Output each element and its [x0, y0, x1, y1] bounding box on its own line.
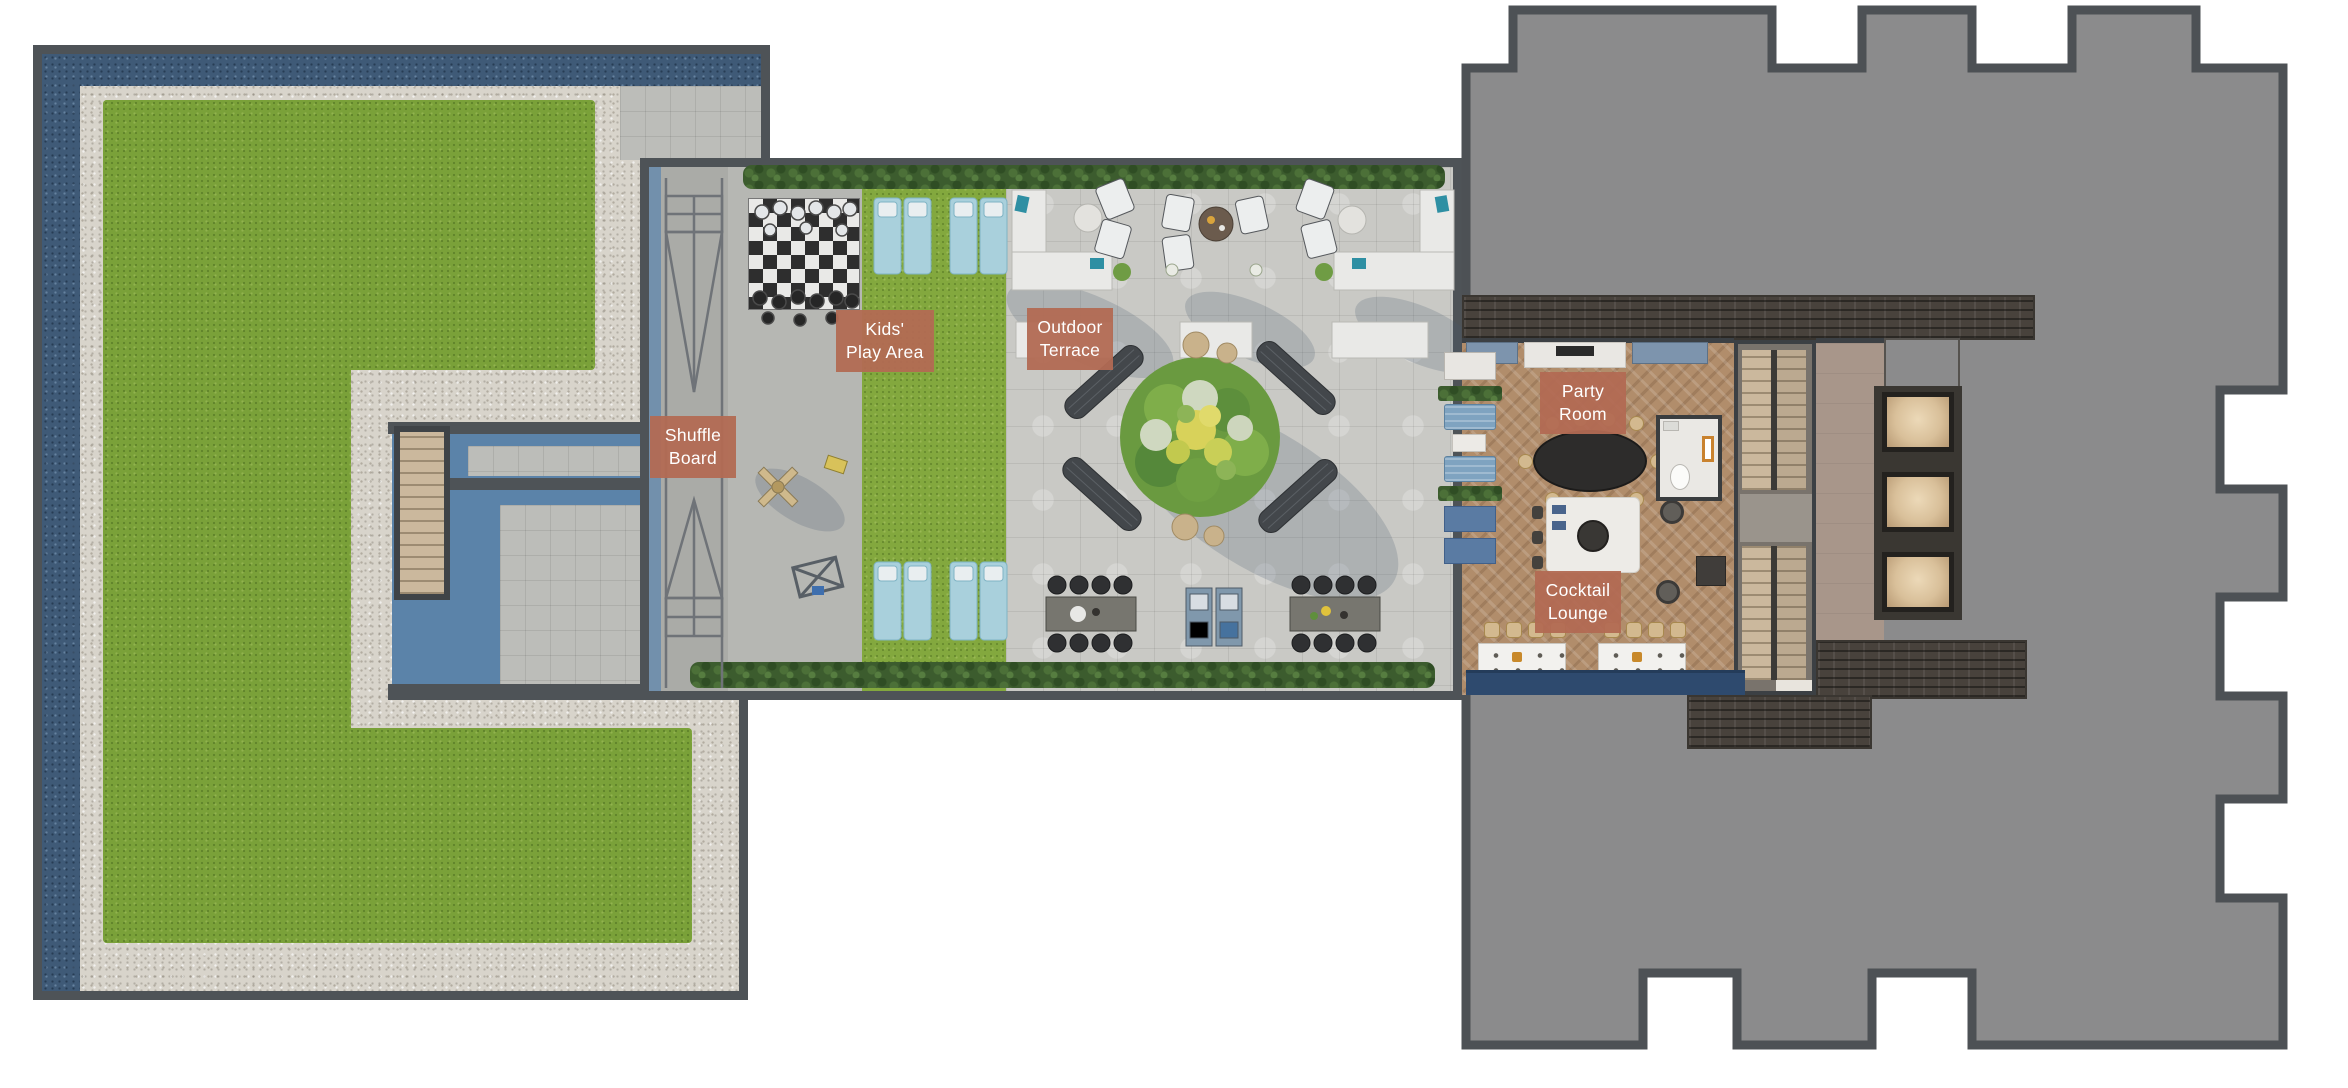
label-kids-play-area: Kids' Play Area	[836, 310, 934, 372]
table-centerpiece	[1632, 652, 1642, 662]
lounge-chair	[1506, 622, 1522, 638]
window-sill-right	[1632, 342, 1708, 364]
lounge-chair	[1670, 622, 1686, 638]
lounge-chair	[1626, 622, 1642, 638]
brick-band-north	[1462, 295, 2035, 340]
island-placemat	[1552, 505, 1566, 514]
island-placemat	[1552, 521, 1566, 530]
table-centerpiece	[1512, 652, 1522, 662]
stair-divider-upper	[1771, 350, 1777, 490]
lounge-chair	[1648, 622, 1664, 638]
label-outdoor-terrace: Outdoor Terrace	[1027, 308, 1113, 370]
office-chair	[1660, 500, 1684, 524]
elevator-car-1	[1882, 392, 1954, 452]
elevator-car-2	[1882, 472, 1954, 532]
nook-lounger	[1444, 404, 1496, 430]
stair-flight-upper-right	[1777, 350, 1806, 490]
brick-apron-south	[1687, 695, 1872, 749]
elevator-car-3	[1882, 552, 1954, 612]
stair-flight-upper-left	[1742, 350, 1771, 490]
nook-bench-white	[1444, 352, 1496, 380]
office-chair	[1656, 580, 1680, 604]
nook-planter-north	[1438, 386, 1502, 401]
tv-screen	[1556, 346, 1594, 356]
lounge-chair	[1484, 622, 1500, 638]
nook-bench-blue	[1444, 538, 1496, 564]
party-chair	[1629, 416, 1644, 431]
island-stool	[1532, 556, 1543, 569]
stair-divider-lower	[1771, 546, 1777, 680]
stair-landing	[1740, 494, 1812, 542]
rooftop-amenity-floor-plan: Shuffle Board Kids' Play Area Outdoor Te…	[0, 0, 2348, 1088]
nook-planter-south	[1438, 486, 1502, 501]
stair-flight-lower-right	[1777, 546, 1806, 680]
washroom-sink	[1663, 421, 1679, 431]
island-stool	[1532, 506, 1543, 519]
stair-flight-lower-left	[1742, 546, 1771, 680]
nook-lounger	[1444, 456, 1496, 482]
label-party-room: Party Room	[1540, 372, 1626, 434]
label-cocktail-lounge: Cocktail Lounge	[1535, 571, 1621, 633]
stair-landing-lower	[1776, 680, 1812, 691]
nook-bench-blue	[1444, 506, 1496, 532]
building-roof	[0, 0, 2348, 1088]
washroom-toilet	[1670, 464, 1690, 490]
serving-tray	[1577, 520, 1609, 552]
party-dining-table	[1533, 430, 1647, 492]
brick-apron-east	[1816, 640, 2027, 699]
island-stool	[1532, 531, 1543, 544]
washroom-picture	[1702, 436, 1714, 462]
elevator-vestibule	[1884, 338, 1960, 388]
banquette-bench	[1466, 670, 1745, 695]
side-desk	[1696, 556, 1726, 586]
label-shuffle-board: Shuffle Board	[650, 416, 736, 478]
party-chair	[1518, 454, 1533, 469]
nook-side-table	[1452, 434, 1486, 452]
